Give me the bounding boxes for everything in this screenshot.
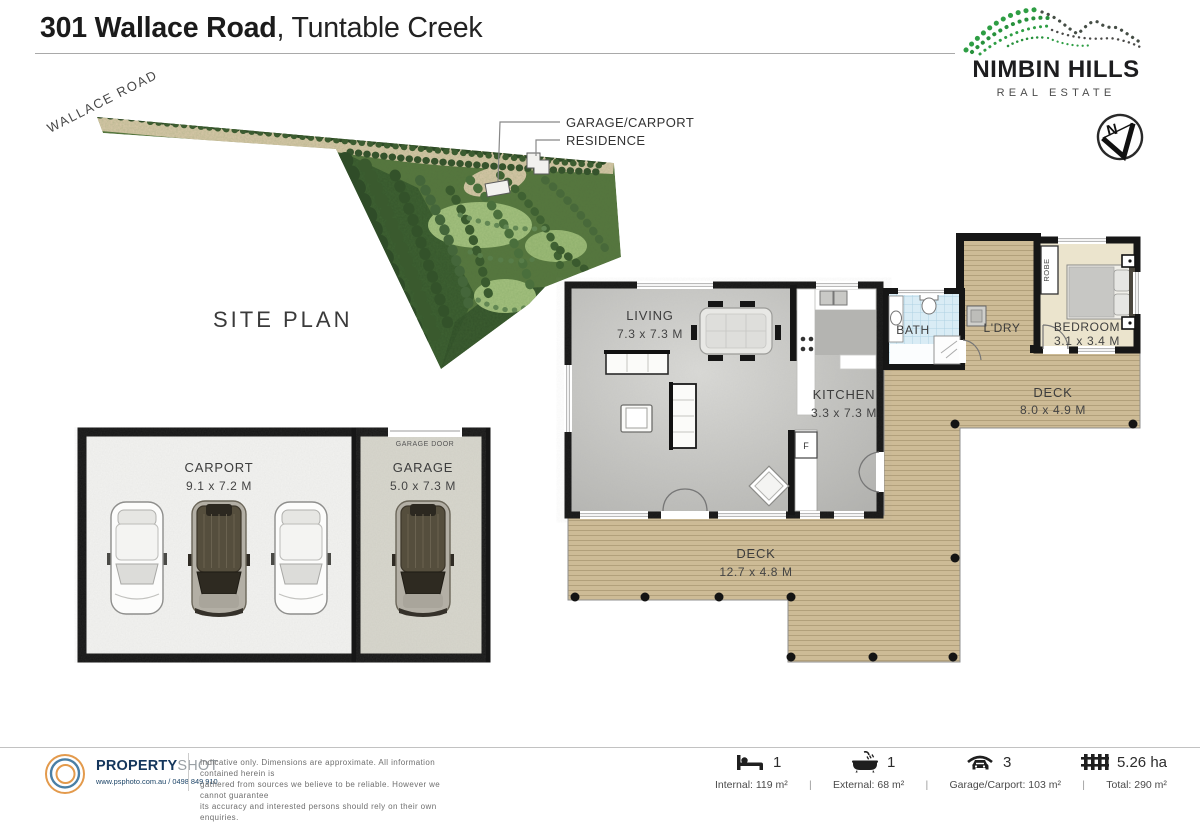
separator: | [1082,779,1085,791]
footer-vertical-divider [188,753,189,791]
area-summary: Internal: 119 m² | External: 68 m² | Gar… [715,779,1167,791]
car-white-1 [107,502,167,614]
disclaimer-line-3: its accuracy and interested persons shou… [200,801,455,823]
agency-name: NIMBIN HILLS [956,56,1156,84]
area-garage: Garage/Carport: 103 m² [950,779,1061,791]
area-total: Total: 290 m² [1106,779,1167,791]
disclaimer: Indicative only. Dimensions are approxim… [200,757,455,823]
plan-canvas: GARAGE/CARPORT RESIDENCE WALLACE ROAD SI… [0,0,1200,800]
kitchen-dims: 3.3 x 7.3 M [811,406,877,420]
area-internal: Internal: 119 m² [715,779,788,791]
deck-main-dims: 12.7 x 4.8 M [719,565,792,579]
living-dims: 7.3 x 7.3 M [617,327,683,341]
armchair [621,405,652,432]
garage-label: GARAGE [393,460,453,475]
deck-main-label: DECK [736,546,775,561]
north-compass-icon: N [1093,110,1146,163]
disclaimer-line-1: Indicative only. Dimensions are approxim… [200,757,455,779]
land-stat: 5.26 ha [1081,751,1167,773]
site-callout-garage: GARAGE/CARPORT [566,115,694,130]
bath-icon [851,751,879,773]
propertyshot-bold: PROPERTY [96,758,177,774]
bed-icon [1067,263,1135,321]
carport: CARPORT 9.1 x 7.2 M [82,432,356,658]
carport-dims: 9.1 x 7.2 M [186,479,252,493]
propertyshot-logo-icon [42,751,88,797]
laundry-label: L'DRY [983,321,1020,335]
car-dark-2 [392,501,454,617]
garage: GARAGE DOOR GARAGE 5.0 x 7.3 M [356,426,486,658]
separator: | [926,779,929,791]
main-house: F [564,281,884,519]
fence-icon [1081,751,1109,773]
robe: ROBE [1041,246,1058,294]
garage-door-label: GARAGE DOOR [396,441,454,448]
kitchen-label: KITCHEN [813,387,876,402]
kitchen-sink-icon [820,291,833,305]
bedroom-label: BEDROOM [1054,320,1120,334]
bedroom: ROBE BEDROOM 3.1 x 3.4 M [1037,236,1141,354]
sofa [604,352,670,374]
robe-label: ROBE [1042,258,1051,281]
disclaimer-line-2: gathered from sources we believe to be r… [200,779,455,801]
address-suffix: , Tuntable Creek [277,12,483,44]
header-rule [35,53,955,54]
footer-divider [0,747,1200,748]
bed-stat: 1 [735,751,781,773]
car-dark-1 [188,501,250,617]
agency-tagline: REAL ESTATE [956,87,1156,99]
separator: | [809,779,812,791]
agency-logo: NIMBIN HILLS REAL ESTATE [956,56,1156,99]
propertyshot-contact: www.psphoto.com.au / 0498 849 910 [96,777,196,786]
bath-stat: 1 [851,751,895,773]
area-external: External: 68 m² [833,779,904,791]
land-area: 5.26 ha [1117,754,1167,771]
garage-dims: 5.0 x 7.3 M [390,479,456,493]
page-title: 301 Wallace Road, Tuntable Creek [40,12,482,45]
bath-count: 1 [887,754,895,771]
car-white-2 [271,502,331,614]
fridge-label: F [803,441,809,451]
bedroom-dims: 3.1 x 3.4 M [1054,334,1120,348]
shower-icon [934,336,960,364]
bath-label: BATH [896,323,930,337]
deck-right-label: DECK [1033,385,1072,400]
bed-count: 1 [773,754,781,771]
propertyshot-logo-text: PROPERTYSHOT www.psphoto.com.au / 0498 8… [96,758,196,786]
car-stat: 3 [965,751,1011,773]
property-stats: 1 1 3 [735,751,1167,773]
laundry-floor [963,240,1037,368]
car-icon [965,751,995,773]
living-label: LIVING [626,308,673,323]
site-callout-residence: RESIDENCE [566,133,645,148]
shelf-unit [671,382,696,450]
dining-table [691,301,781,361]
carport-label: CARPORT [185,460,254,475]
brand-hills-icon [966,10,1143,54]
car-count: 3 [1003,754,1011,771]
fridge-unit: F [788,430,817,515]
site-plan-title: SITE PLAN [213,307,352,332]
deck-right-dims: 8.0 x 4.9 M [1020,403,1086,417]
address-bold: 301 Wallace Road [40,12,277,44]
bed-icon [735,751,765,773]
